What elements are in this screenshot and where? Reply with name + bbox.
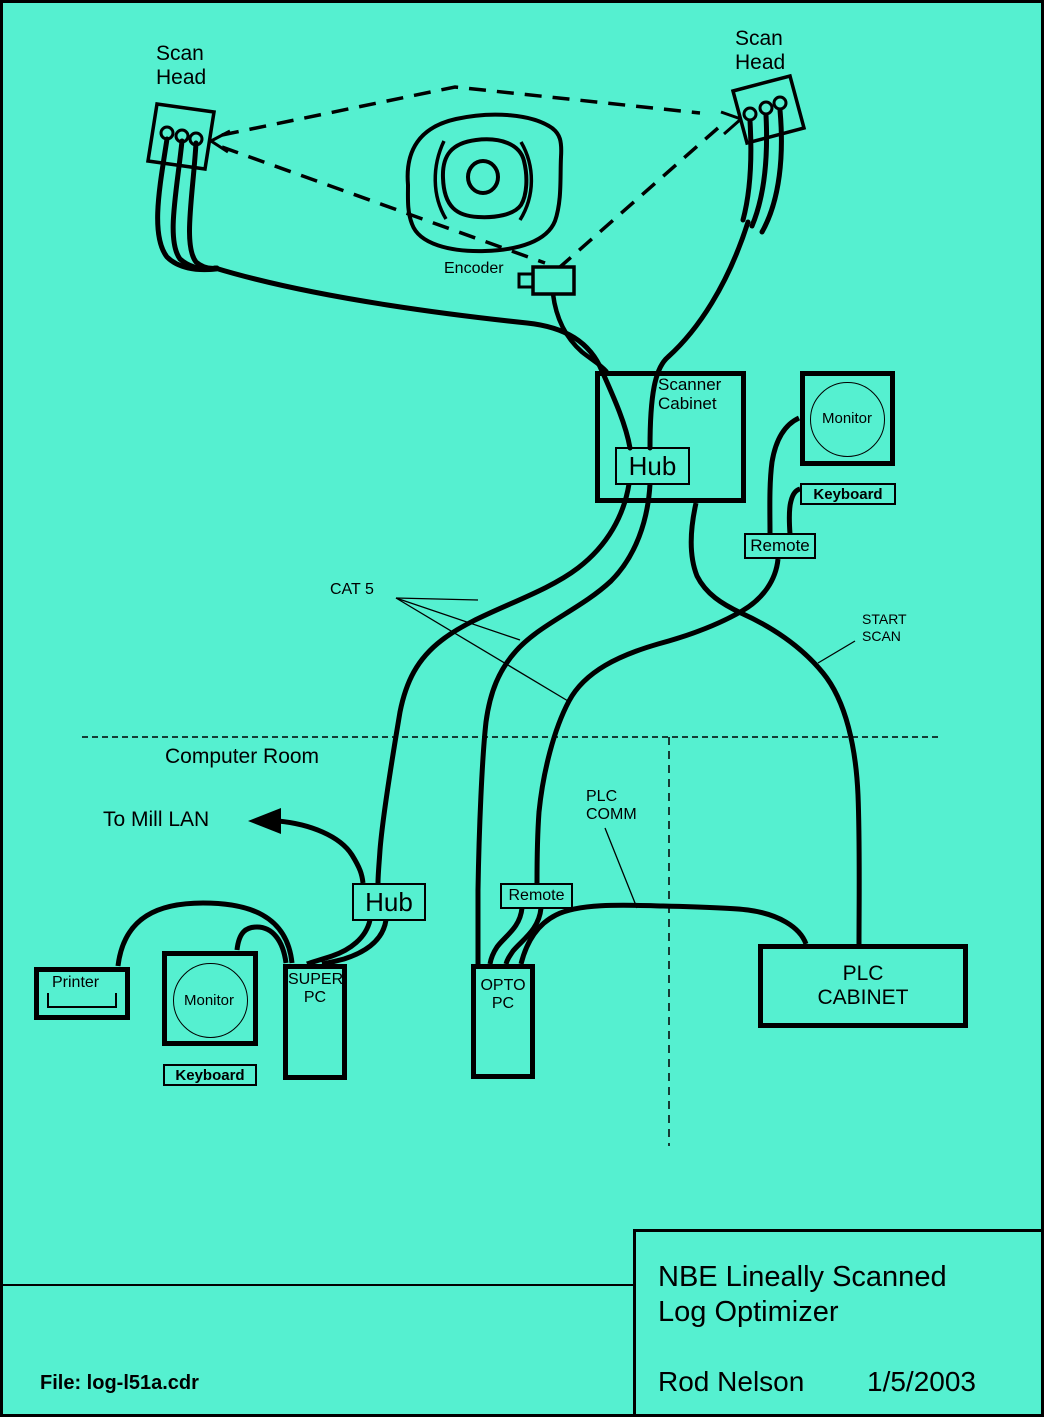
plc-cabinet-box: PLC CABINET — [758, 944, 968, 1028]
operator-monitor-label: Monitor — [822, 410, 872, 427]
scan-head-left-label: Scan Head — [156, 42, 206, 90]
computer-room-remote-label: Remote — [508, 887, 564, 905]
to-mill-lan-arrow-icon — [248, 808, 363, 883]
computer-room-remote-box: Remote — [500, 883, 573, 909]
plc-cabinet-label: PLC CABINET — [817, 962, 908, 1010]
scanner-cabinet-label: Scanner Cabinet — [658, 375, 721, 413]
title-block: NBE Lineally Scanned Log Optimizer Rod N… — [633, 1229, 1044, 1417]
operator-monitor-box: Monitor — [800, 371, 895, 466]
hub-superpc-cable-2 — [322, 920, 386, 964]
operator-keyboard-label: Keyboard — [813, 486, 882, 503]
hub-superpc-cable-1 — [307, 920, 370, 964]
pc-monitor-label: Monitor — [184, 992, 234, 1009]
remote-optopc-cable-1 — [490, 908, 522, 964]
cat5-label: CAT 5 — [330, 581, 374, 599]
start-scan-leader-line — [818, 641, 855, 663]
scan-beam-dashed-lines — [222, 87, 718, 267]
remote-extension-cable — [537, 559, 778, 883]
page-border — [0, 0, 1044, 1417]
computer-room-label: Computer Room — [165, 745, 319, 769]
super-pc-label: SUPER PC — [288, 971, 342, 1007]
operator-remote-box: Remote — [744, 533, 816, 559]
pc-keyboard-box: Keyboard — [163, 1064, 257, 1086]
file-name-label: File: log-l51a.cdr — [40, 1372, 199, 1395]
to-mill-lan-label: To Mill LAN — [103, 808, 209, 832]
opto-pc-label: OPTO PC — [476, 977, 530, 1013]
remote-optopc-cable-2 — [506, 908, 541, 964]
scanner-hub-box: Hub — [615, 447, 690, 485]
printer-box: Printer — [34, 967, 130, 1020]
scan-head-left-icon — [148, 104, 214, 169]
remote-keyboard-cable — [789, 489, 800, 534]
super-pc-box: SUPER PC — [283, 964, 347, 1080]
pc-keyboard-label: Keyboard — [175, 1067, 244, 1084]
beam-arrowhead-icon — [211, 112, 741, 152]
drawing-author: Rod Nelson — [658, 1366, 804, 1398]
scan-head-right-label: Scan Head — [735, 27, 785, 75]
scan-head-right-icon — [733, 76, 804, 143]
start-scan-label: START SCAN — [862, 611, 907, 645]
pc-monitor-box: Monitor — [162, 951, 258, 1046]
plc-comm-label: PLC COMM — [586, 788, 637, 824]
encoder-icon — [519, 267, 574, 294]
diagram-linework — [0, 0, 1044, 1417]
operator-remote-label: Remote — [750, 536, 810, 556]
plc-comm-leader-line — [605, 828, 637, 908]
printer-label: Printer — [52, 974, 99, 992]
cat5-leader-lines — [396, 598, 568, 701]
computer-room-hub-label: Hub — [365, 887, 413, 918]
operator-keyboard-box: Keyboard — [800, 483, 896, 505]
start-scan-cable — [691, 503, 859, 944]
scan-head-left-cables — [158, 139, 630, 448]
drawing-title: NBE Lineally Scanned Log Optimizer — [658, 1260, 947, 1330]
log-cross-section-icon — [408, 115, 562, 251]
scanner-hub-label: Hub — [629, 451, 677, 482]
drawing-date: 1/5/2003 — [867, 1366, 976, 1398]
opto-pc-box: OPTO PC — [471, 964, 535, 1079]
computer-room-hub-box: Hub — [352, 883, 426, 921]
encoder-label: Encoder — [444, 260, 504, 278]
diagram-page: Scanner Cabinet Hub Monitor Keyboard Rem… — [0, 0, 1044, 1417]
encoder-cable — [553, 294, 607, 372]
remote-monitor-cable — [770, 418, 799, 534]
